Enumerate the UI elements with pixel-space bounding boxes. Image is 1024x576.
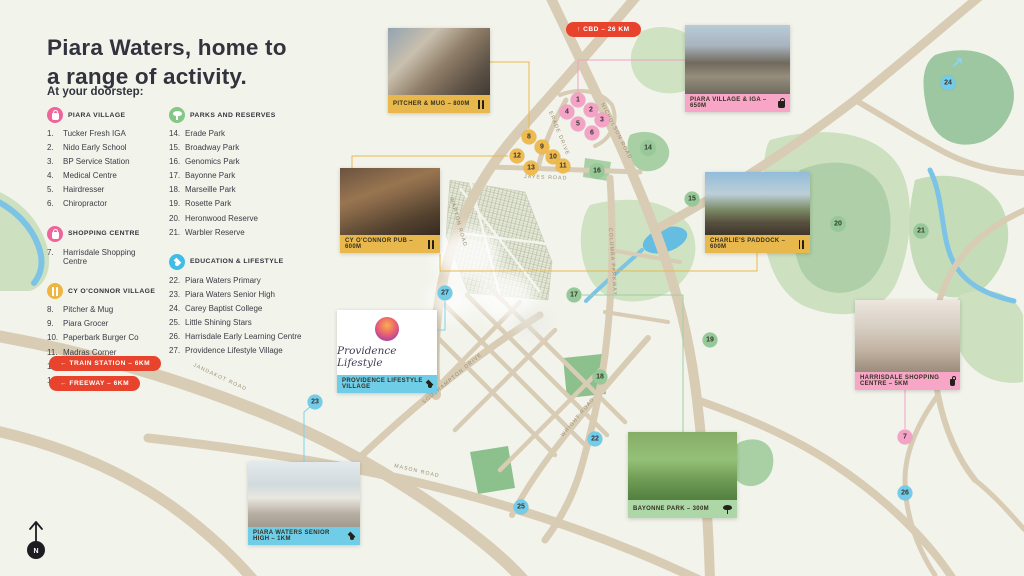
legend-item-label: Carey Baptist College	[185, 304, 319, 314]
photo-card-piara-village-iga: PIARA VILLAGE & IGA – 650M	[685, 25, 790, 112]
marker-1[interactable]: 1	[571, 93, 586, 108]
legend-section-title: SHOPPING CENTRE	[68, 230, 140, 237]
legend-item-number: 3.	[47, 157, 59, 167]
photo-caption-label: HARRISDALE SHOPPING CENTRE – 5KM	[860, 375, 950, 387]
photo-caption-icon	[477, 100, 485, 109]
legend-item-label: Rosette Park	[185, 199, 319, 209]
photo-caption-label: PIARA WATERS SENIOR HIGH – 1KM	[253, 530, 347, 542]
marker-8[interactable]: 8	[522, 130, 537, 145]
legend-item-label: Marseille Park	[185, 185, 319, 195]
legend-item-number: 18.	[169, 185, 181, 195]
legend-item: 8. Pitcher & Mug	[47, 305, 157, 315]
callout-photo	[628, 432, 737, 500]
marker-5[interactable]: 5	[571, 117, 586, 132]
callout-photo	[340, 168, 440, 235]
marker-number: 11	[559, 163, 566, 170]
marker-number: 22	[591, 436, 599, 443]
category-icon	[172, 258, 182, 266]
category-icon	[173, 111, 182, 120]
legend-item: 7. Harrisdale Shopping Centre	[47, 248, 157, 267]
legend-category-icon	[47, 226, 63, 242]
legend-item-label: Harrisdale Early Learning Centre	[185, 332, 319, 342]
legend-item-number: 19.	[169, 199, 181, 209]
marker-23[interactable]: 23	[308, 395, 323, 410]
legend-section-header: PARKS AND RESERVES	[169, 107, 319, 123]
photo-caption-label: BAYONNE PARK – 300M	[633, 506, 709, 512]
photo-caption-bar: PIARA VILLAGE & IGA – 650M	[685, 94, 790, 112]
legend-item-label: Piara Grocer	[63, 319, 157, 329]
cbd-distance-badge[interactable]: ↑ CBD – 26 KM	[566, 22, 641, 37]
legend-item: 14. Erade Park	[169, 129, 319, 139]
marker-number: 8	[527, 134, 531, 141]
marker-number: 19	[706, 337, 714, 344]
legend-item-number: 23.	[169, 290, 181, 300]
marker-number: 1	[576, 97, 580, 104]
legend-item: 5. Hairdresser	[47, 185, 157, 195]
legend-category-icon	[169, 254, 185, 270]
legend-item: 15. Broadway Park	[169, 143, 319, 153]
legend-section-title: PARKS AND RESERVES	[190, 112, 276, 119]
legend-item-label: Nido Early School	[63, 143, 157, 153]
legend-item: 4. Medical Centre	[47, 171, 157, 181]
marker-22[interactable]: 22	[588, 432, 603, 447]
legend-item: 21. Warbler Reserve	[169, 228, 319, 238]
marker-26[interactable]: 26	[898, 486, 913, 501]
legend-item: 3. BP Service Station	[47, 157, 157, 167]
marker-18[interactable]: 18	[593, 370, 608, 385]
legend-item-number: 10.	[47, 333, 59, 343]
marker-number: 3	[600, 117, 604, 124]
marker-number: 21	[917, 228, 925, 235]
photo-caption-icon	[950, 379, 955, 386]
legend-item: 16. Genomics Park	[169, 157, 319, 167]
legend-item-label: Bayonne Park	[185, 171, 319, 181]
legend-item: 10. Paperbark Burger Co	[47, 333, 157, 343]
marker-number: 7	[903, 434, 907, 441]
photo-card-charlies-paddock: CHARLIE'S PADDOCK – 600M	[705, 172, 810, 253]
road-label: NICHOLSON ROAD	[599, 102, 633, 161]
photo-caption-bar: PROVIDENCE LIFESTYLE VILLAGE	[337, 375, 437, 393]
legend-section-header: EDUCATION & LIFESTYLE	[169, 254, 319, 270]
legend-section-title: PIARA VILLAGE	[68, 112, 125, 119]
legend-item: 1. Tucker Fresh IGA	[47, 129, 157, 139]
legend-item-label: Harrisdale Shopping Centre	[63, 248, 157, 267]
marker-21[interactable]: 21	[914, 224, 929, 239]
legend-item-number: 17.	[169, 171, 181, 181]
legend-item-label: Little Shining Stars	[185, 318, 319, 328]
photo-caption-bar: CHARLIE'S PADDOCK – 600M	[705, 235, 810, 253]
legend-item: 9. Piara Grocer	[47, 319, 157, 329]
photo-caption-bar: CY O'CONNOR PUB – 600M	[340, 235, 440, 253]
photo-card-bayonne-park: BAYONNE PARK – 300M	[628, 432, 737, 518]
legend-item-label: Tucker Fresh IGA	[63, 129, 157, 139]
marker-15[interactable]: 15	[685, 192, 700, 207]
legend-item-label: Medical Centre	[63, 171, 157, 181]
north-arrow-icon: N	[24, 516, 48, 560]
legend-item-label: Heronwood Reserve	[185, 214, 319, 224]
legend-item-number: 1.	[47, 129, 59, 139]
providence-logo-text: Providence Lifestyle	[337, 345, 437, 369]
photo-caption-icon	[723, 505, 732, 514]
legend-item-number: 25.	[169, 318, 181, 328]
legend-item: 23. Piara Waters Senior High	[169, 290, 319, 300]
legend-item-number: 8.	[47, 305, 59, 315]
legend-section-header: CY O'CONNOR VILLAGE	[47, 283, 157, 299]
photo-card-harrisdale-shopping: HARRISDALE SHOPPING CENTRE – 5KM	[855, 300, 960, 390]
legend-section: SHOPPING CENTRE 7. Harrisdale Shopping C…	[47, 223, 157, 272]
svg-text:N: N	[33, 548, 38, 555]
legend-column: PIARA VILLAGE 1. Tucker Fresh IGA 2. Nid…	[47, 104, 157, 399]
legend-item-number: 4.	[47, 171, 59, 181]
photo-caption-label: CY O'CONNOR PUB – 600M	[345, 238, 427, 250]
marker-number: 24	[944, 80, 952, 87]
legend-item-label: Warbler Reserve	[185, 228, 319, 238]
legend-item: 19. Rosette Park	[169, 199, 319, 209]
train-station-badge[interactable]: ← TRAIN STATION – 6KM	[49, 356, 161, 371]
graduation-cap-icon	[425, 380, 432, 388]
legend-item-number: 16.	[169, 157, 181, 167]
marker-24[interactable]: 24	[941, 76, 956, 91]
piara-waters-map-page: NICHOLSON ROADERADE DRIVEJAYES ROADWARTO…	[0, 0, 1024, 576]
marker-3[interactable]: 3	[595, 113, 610, 128]
photo-caption-label: PITCHER & MUG – 800M	[393, 101, 470, 107]
photo-card-cy-oconnor-pub: CY O'CONNOR PUB – 600M	[340, 168, 440, 253]
marker-17[interactable]: 17	[567, 288, 582, 303]
marker-14[interactable]: 14	[641, 141, 656, 156]
marker-number: 20	[834, 221, 842, 228]
marker-20[interactable]: 20	[831, 217, 846, 232]
legend-item: 24. Carey Baptist College	[169, 304, 319, 314]
marker-number: 4	[565, 109, 569, 116]
photo-caption-label: PROVIDENCE LIFESTYLE VILLAGE	[342, 378, 425, 390]
legend-item-label: Broadway Park	[185, 143, 319, 153]
marker-11[interactable]: 11	[556, 159, 571, 174]
legend-item-number: 5.	[47, 185, 59, 195]
legend-item: 18. Marseille Park	[169, 185, 319, 195]
legend-item-number: 22.	[169, 276, 181, 286]
legend: PIARA VILLAGE 1. Tucker Fresh IGA 2. Nid…	[47, 104, 319, 399]
marker-number: 26	[901, 490, 909, 497]
legend-item-label: Genomics Park	[185, 157, 319, 167]
category-icon	[52, 232, 59, 239]
connector-line	[352, 156, 508, 168]
legend-item-label: Erade Park	[185, 129, 319, 139]
photo-card-senior-high: PIARA WATERS SENIOR HIGH – 1KM	[248, 462, 360, 545]
marker-6[interactable]: 6	[585, 126, 600, 141]
marker-number: 6	[590, 130, 594, 137]
marker-number: 27	[441, 290, 449, 297]
marker-19[interactable]: 19	[703, 333, 718, 348]
category-icon	[52, 113, 59, 120]
legend-category-icon	[47, 283, 63, 299]
callout-photo	[248, 462, 360, 527]
legend-column: PARKS AND RESERVES 14. Erade Park 15. Br…	[169, 104, 319, 399]
page-title: Piara Waters, home toa range of activity…	[47, 34, 307, 92]
marker-16[interactable]: 16	[590, 164, 605, 179]
photo-caption-icon	[798, 240, 805, 249]
legend-item: 22. Piara Waters Primary	[169, 276, 319, 286]
marker-number: 17	[570, 292, 578, 299]
marker-number: 2	[589, 107, 593, 114]
photo-caption-bar: BAYONNE PARK – 300M	[628, 500, 737, 518]
legend-item: 17. Bayonne Park	[169, 171, 319, 181]
legend-item: 20. Heronwood Reserve	[169, 214, 319, 224]
legend-category-icon	[47, 107, 63, 123]
legend-section-header: SHOPPING CENTRE	[47, 226, 157, 242]
legend-section-title: CY O'CONNOR VILLAGE	[68, 288, 155, 295]
northeast-arrow-icon: ↗	[951, 53, 964, 71]
legend-section: EDUCATION & LIFESTYLE 22. Piara Waters P…	[169, 251, 319, 361]
legend-item-label: Paperbark Burger Co	[63, 333, 157, 343]
legend-item-label: Providence Lifestyle Village	[185, 346, 319, 356]
legend-item: 2. Nido Early School	[47, 143, 157, 153]
legend-item-label: BP Service Station	[63, 157, 157, 167]
marker-number: 16	[593, 168, 601, 175]
legend-section-header: PIARA VILLAGE	[47, 107, 157, 123]
photo-card-pitcher-mug: PITCHER & MUG – 800M	[388, 28, 490, 113]
marker-number: 25	[517, 504, 525, 511]
marker-number: 9	[540, 144, 544, 151]
marker-number: 15	[688, 196, 696, 203]
legend-item-number: 27.	[169, 346, 181, 356]
legend-item-label: Chiropractor	[63, 199, 157, 209]
photo-caption-bar: PITCHER & MUG – 800M	[388, 95, 490, 113]
marker-27[interactable]: 27	[438, 286, 453, 301]
marker-12[interactable]: 12	[510, 149, 525, 164]
marker-number: 10	[549, 154, 557, 161]
callout-photo	[705, 172, 810, 235]
legend-item-label: Hairdresser	[63, 185, 157, 195]
legend-item: 27. Providence Lifestyle Village	[169, 346, 319, 356]
north-indicator: N	[24, 516, 48, 560]
transport-badges: ← TRAIN STATION – 6KM ← FREEWAY – 6KM	[49, 356, 161, 391]
legend-item-number: 9.	[47, 319, 59, 329]
callout-photo	[685, 25, 790, 94]
legend-item: 6. Chiropractor	[47, 199, 157, 209]
legend-item-label: Pitcher & Mug	[63, 305, 157, 315]
legend-item-number: 14.	[169, 129, 181, 139]
legend-item-number: 21.	[169, 228, 181, 238]
legend-item-label: Piara Waters Senior High	[185, 290, 319, 300]
legend-item: 25. Little Shining Stars	[169, 318, 319, 328]
legend-item-number: 20.	[169, 214, 181, 224]
marker-13[interactable]: 13	[524, 161, 539, 176]
legend-category-icon	[169, 107, 185, 123]
providence-logo-card: Providence Lifestyle	[337, 310, 437, 375]
legend-item: 26. Harrisdale Early Learning Centre	[169, 332, 319, 342]
legend-section-title: EDUCATION & LIFESTYLE	[190, 258, 284, 265]
photo-caption-bar: PIARA WATERS SENIOR HIGH – 1KM	[248, 527, 360, 545]
legend-item-number: 15.	[169, 143, 181, 153]
photo-caption-bar: HARRISDALE SHOPPING CENTRE – 5KM	[855, 372, 960, 390]
legend-item-number: 6.	[47, 199, 59, 209]
legend-item-label: Piara Waters Primary	[185, 276, 319, 286]
photo-caption-icon	[778, 101, 785, 108]
marker-7[interactable]: 7	[898, 430, 913, 445]
freeway-badge[interactable]: ← FREEWAY – 6KM	[49, 376, 140, 391]
marker-number: 5	[576, 121, 580, 128]
photo-caption-icon	[347, 532, 355, 540]
marker-number: 14	[644, 145, 652, 152]
providence-tree-logo-icon	[375, 317, 399, 341]
legend-section: PIARA VILLAGE 1. Tucker Fresh IGA 2. Nid…	[47, 104, 157, 214]
callout-photo	[388, 28, 490, 95]
page-subtitle: At your doorstep:	[47, 86, 143, 98]
marker-number: 23	[311, 399, 319, 406]
category-icon	[51, 287, 59, 296]
legend-item-number: 24.	[169, 304, 181, 314]
legend-item-number: 26.	[169, 332, 181, 342]
callout-photo	[855, 300, 960, 372]
photo-caption-icon	[427, 240, 435, 249]
marker-number: 12	[513, 153, 521, 160]
photo-card-providence-lifestyle: Providence Lifestyle PROVIDENCE LIFESTYL…	[337, 310, 437, 393]
marker-25[interactable]: 25	[514, 500, 529, 515]
legend-item-number: 7.	[47, 248, 59, 267]
legend-section: PARKS AND RESERVES 14. Erade Park 15. Br…	[169, 104, 319, 242]
marker-number: 18	[596, 374, 604, 381]
legend-item-number: 2.	[47, 143, 59, 153]
photo-caption-label: PIARA VILLAGE & IGA – 650M	[690, 97, 778, 109]
photo-caption-label: CHARLIE'S PADDOCK – 600M	[710, 238, 798, 250]
marker-number: 13	[527, 165, 535, 172]
